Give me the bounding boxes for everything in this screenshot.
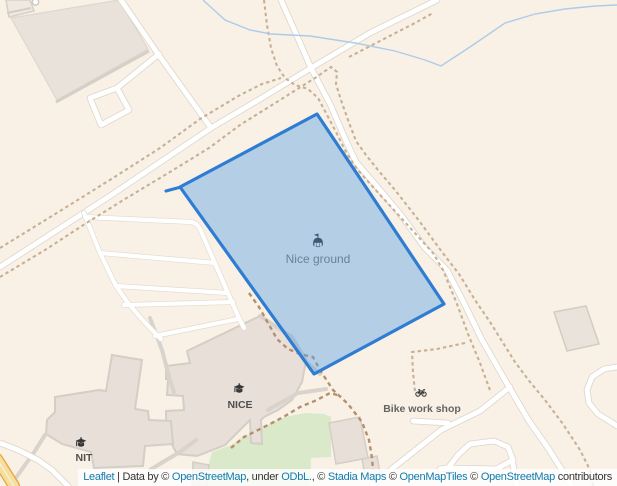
svg-text:NICE: NICE [227,399,252,411]
svg-text:Bike work shop: Bike work shop [383,403,461,415]
svg-text:NIT: NIT [76,452,94,464]
svg-text:Nice ground: Nice ground [286,252,351,266]
